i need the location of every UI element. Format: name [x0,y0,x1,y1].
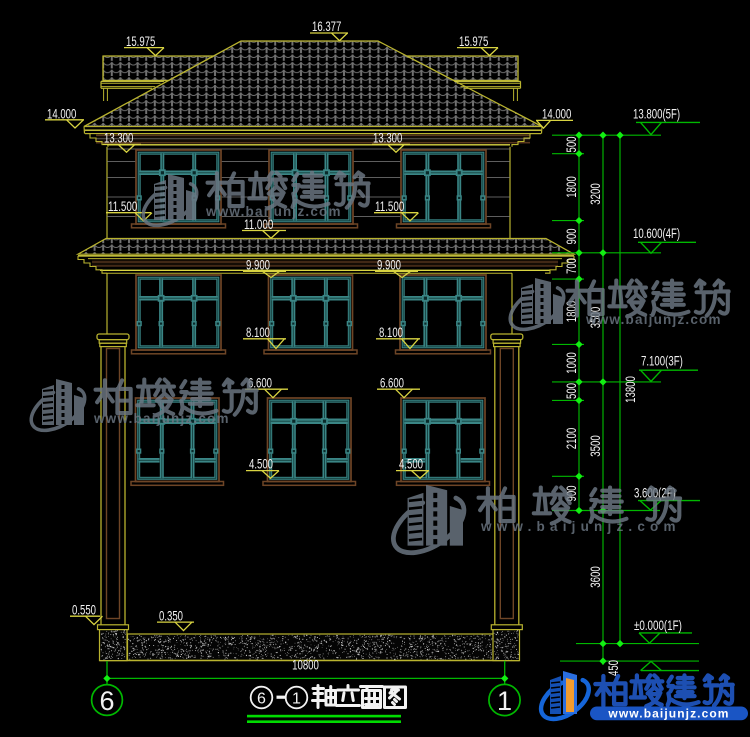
svg-text:6: 6 [99,686,114,716]
svg-text:11.000: 11.000 [244,217,273,232]
svg-text:11.500: 11.500 [375,199,404,214]
svg-text:www.baijunjz.com: www.baijunjz.com [93,411,230,426]
svg-text:16.377: 16.377 [312,19,341,34]
svg-text:500: 500 [564,137,579,153]
svg-text:1800: 1800 [564,176,579,197]
svg-text:1000: 1000 [564,352,579,373]
svg-text:±0.000(1F): ±0.000(1F) [634,618,682,633]
svg-text:14.000: 14.000 [542,106,571,121]
svg-text:13.800(5F): 13.800(5F) [633,107,680,122]
svg-text:9.900: 9.900 [246,258,270,273]
svg-text:6.600: 6.600 [380,376,404,391]
svg-text:500: 500 [564,383,579,399]
svg-text:0.550: 0.550 [72,603,96,618]
svg-text:10800: 10800 [292,658,319,673]
svg-text:10.600(4F): 10.600(4F) [633,226,680,241]
svg-text:13800: 13800 [623,376,638,403]
svg-text:900: 900 [564,229,579,245]
svg-text:450: 450 [606,660,621,676]
svg-text:3500: 3500 [588,435,603,456]
svg-text:3200: 3200 [588,183,603,204]
svg-text:3600: 3600 [588,566,603,587]
svg-text:4.500: 4.500 [399,457,423,472]
svg-text:15.975: 15.975 [459,34,488,49]
svg-text:www.baijunjz.com: www.baijunjz.com [585,312,722,327]
svg-text:2100: 2100 [564,428,579,449]
svg-text:4.500: 4.500 [249,457,273,472]
svg-text:www.baijunjz.com: www.baijunjz.com [205,204,342,219]
svg-text:9.900: 9.900 [377,258,401,273]
svg-text:6: 6 [257,691,266,708]
svg-text:13.300: 13.300 [104,131,133,146]
svg-text:14.000: 14.000 [47,106,76,121]
svg-text:8.100: 8.100 [379,325,403,340]
svg-text:8.100: 8.100 [246,325,270,340]
svg-text:15.975: 15.975 [126,34,155,49]
svg-text:11.500: 11.500 [108,199,137,214]
svg-text:1: 1 [292,691,301,708]
svg-text:0.350: 0.350 [159,609,183,624]
svg-text:13.300: 13.300 [373,131,402,146]
svg-text:700: 700 [564,258,579,274]
svg-text:www.baijunjz.com: www.baijunjz.com [607,706,729,720]
svg-text:www.baijunjz.com: www.baijunjz.com [480,519,681,534]
svg-text:7.100(3F): 7.100(3F) [641,354,683,369]
svg-text:1: 1 [497,686,512,716]
